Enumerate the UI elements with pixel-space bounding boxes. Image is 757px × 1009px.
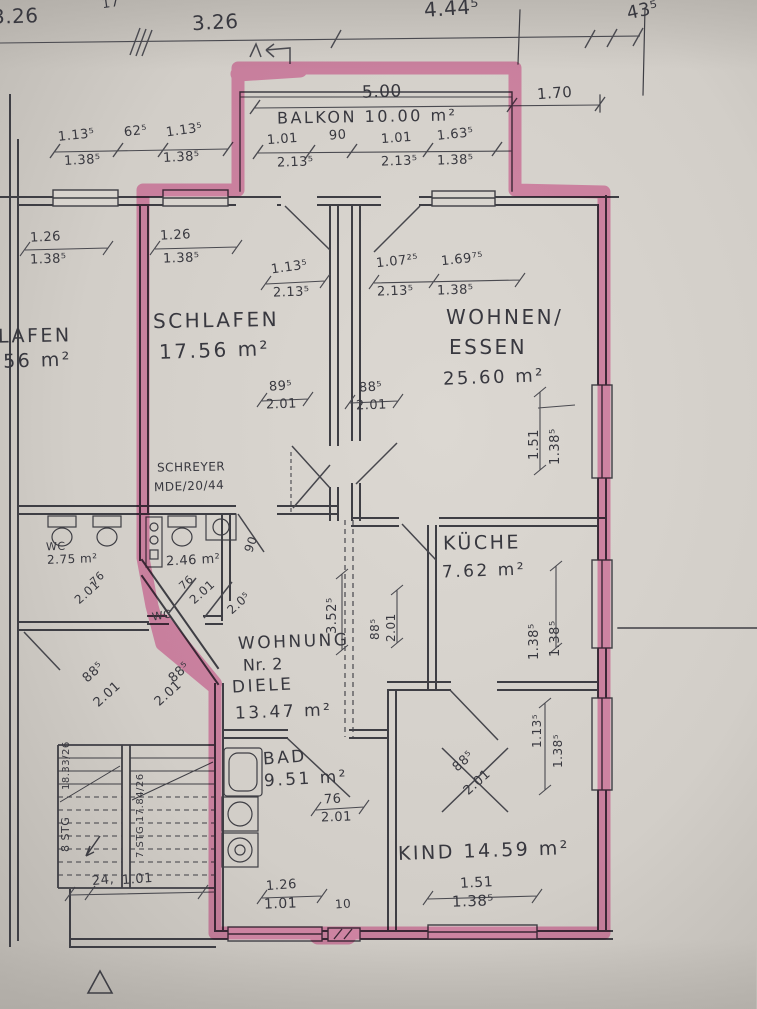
floorplan-scan: 3.26173.264.44⁵43⁵5.001.70BALKON 10.00 m… (0, 0, 757, 1009)
plan-drawing (0, 0, 757, 1009)
